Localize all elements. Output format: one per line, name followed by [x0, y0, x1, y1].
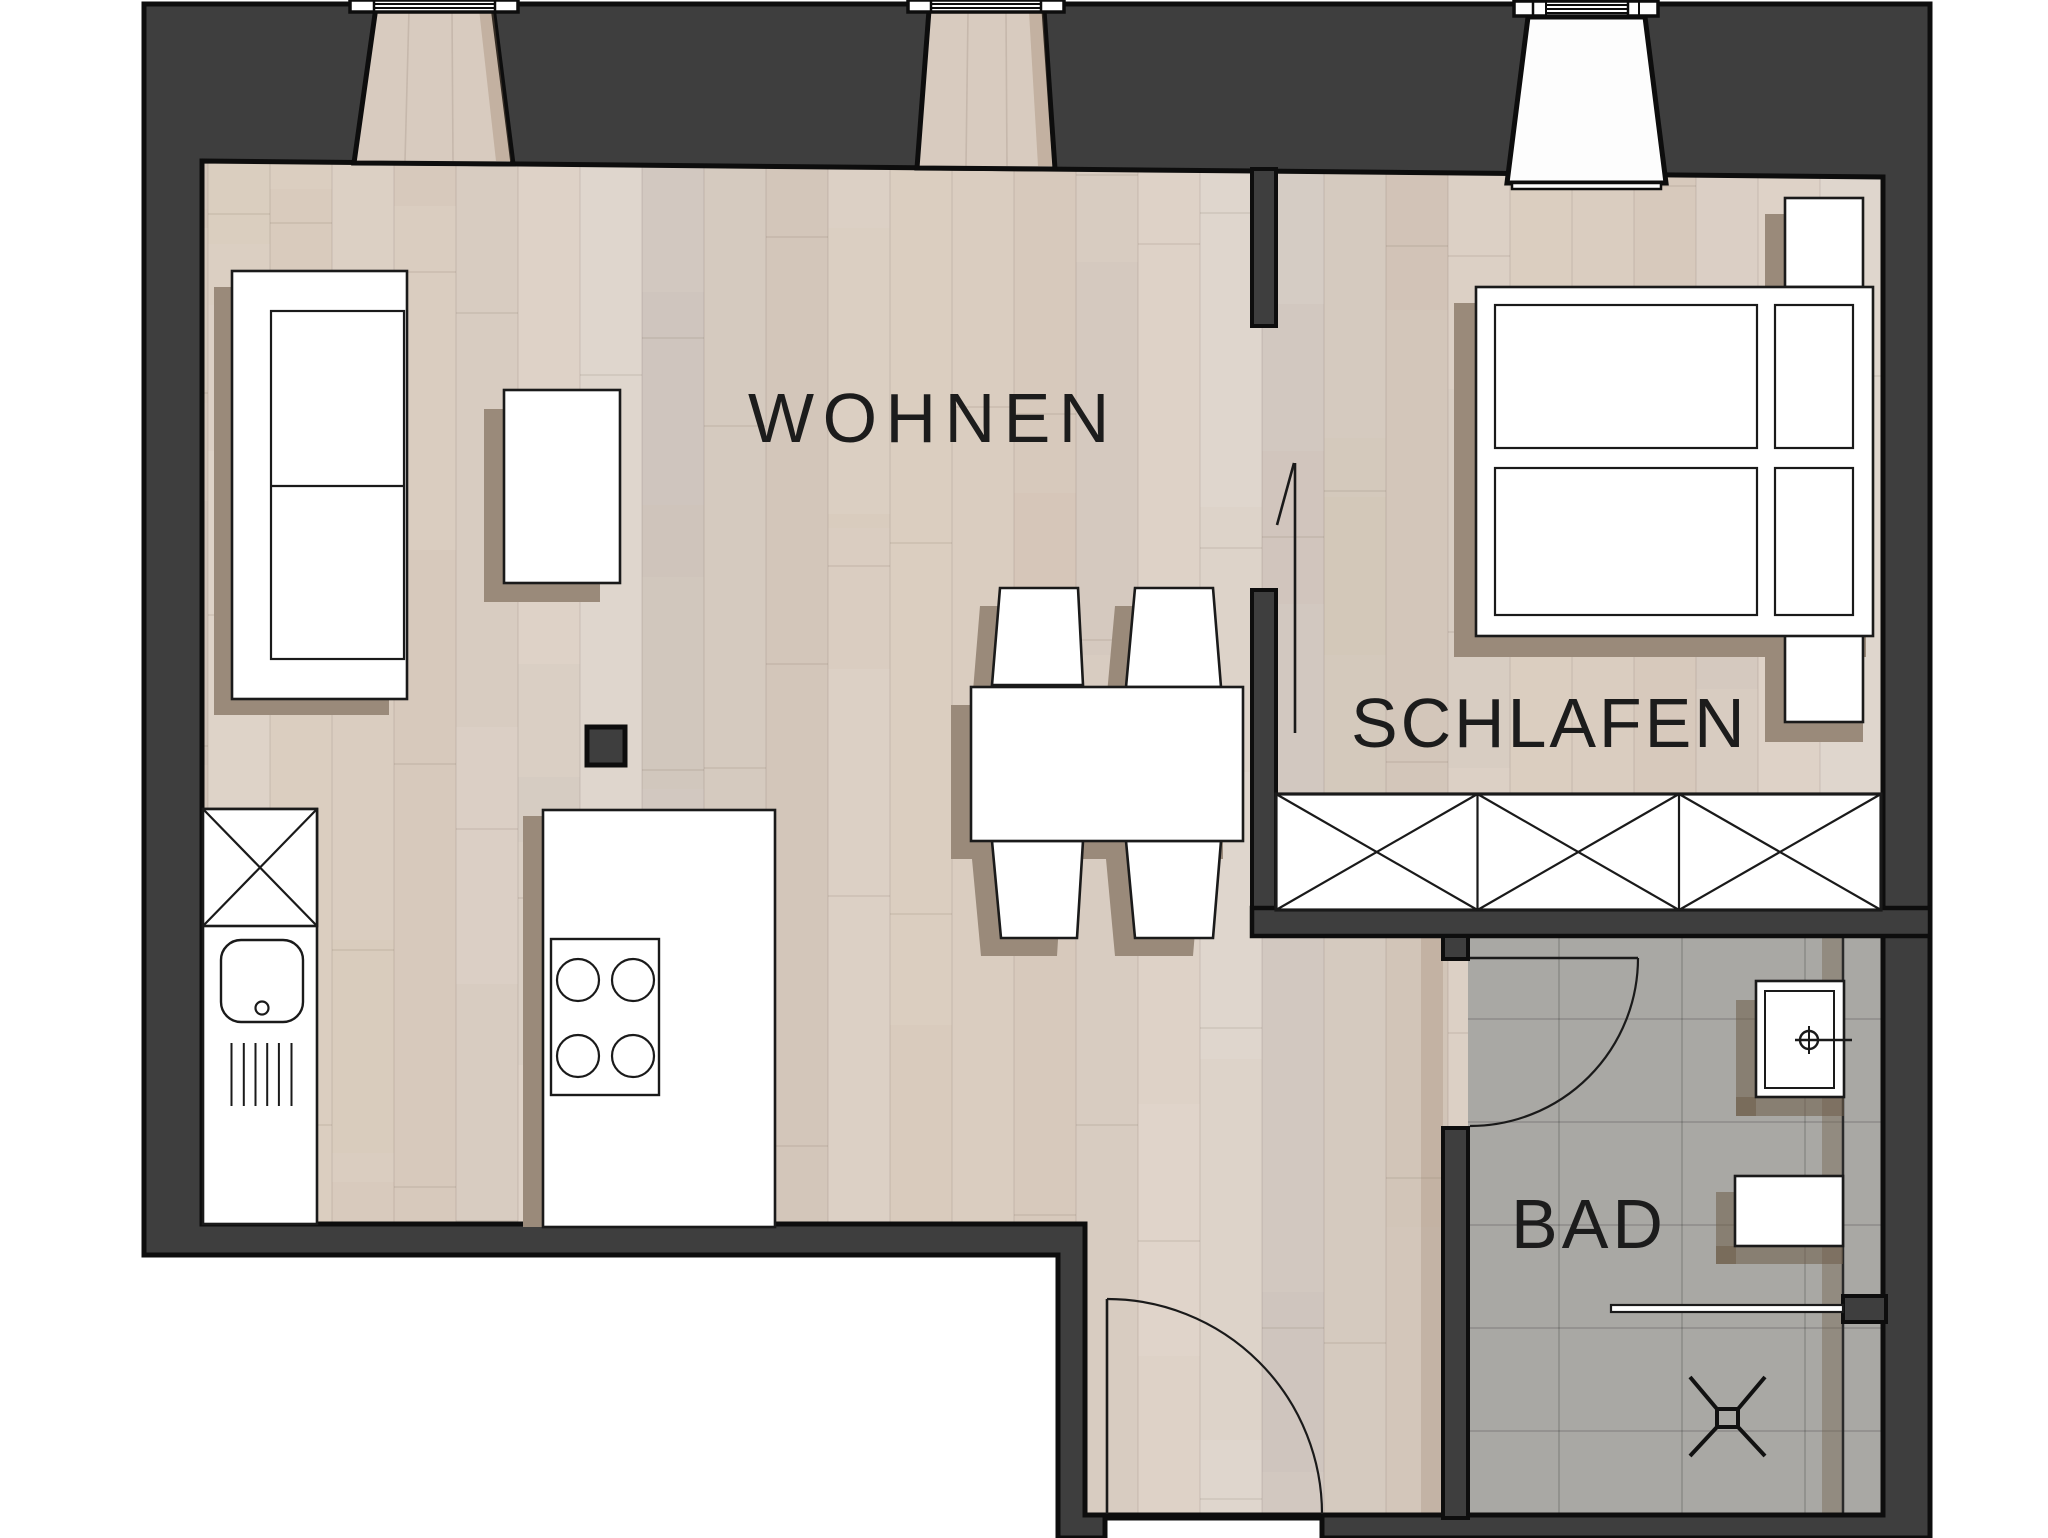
svg-text:SCHLAFEN: SCHLAFEN	[1351, 684, 1748, 762]
svg-text:BAD: BAD	[1511, 1185, 1667, 1263]
svg-text:WOHNEN: WOHNEN	[748, 379, 1118, 457]
